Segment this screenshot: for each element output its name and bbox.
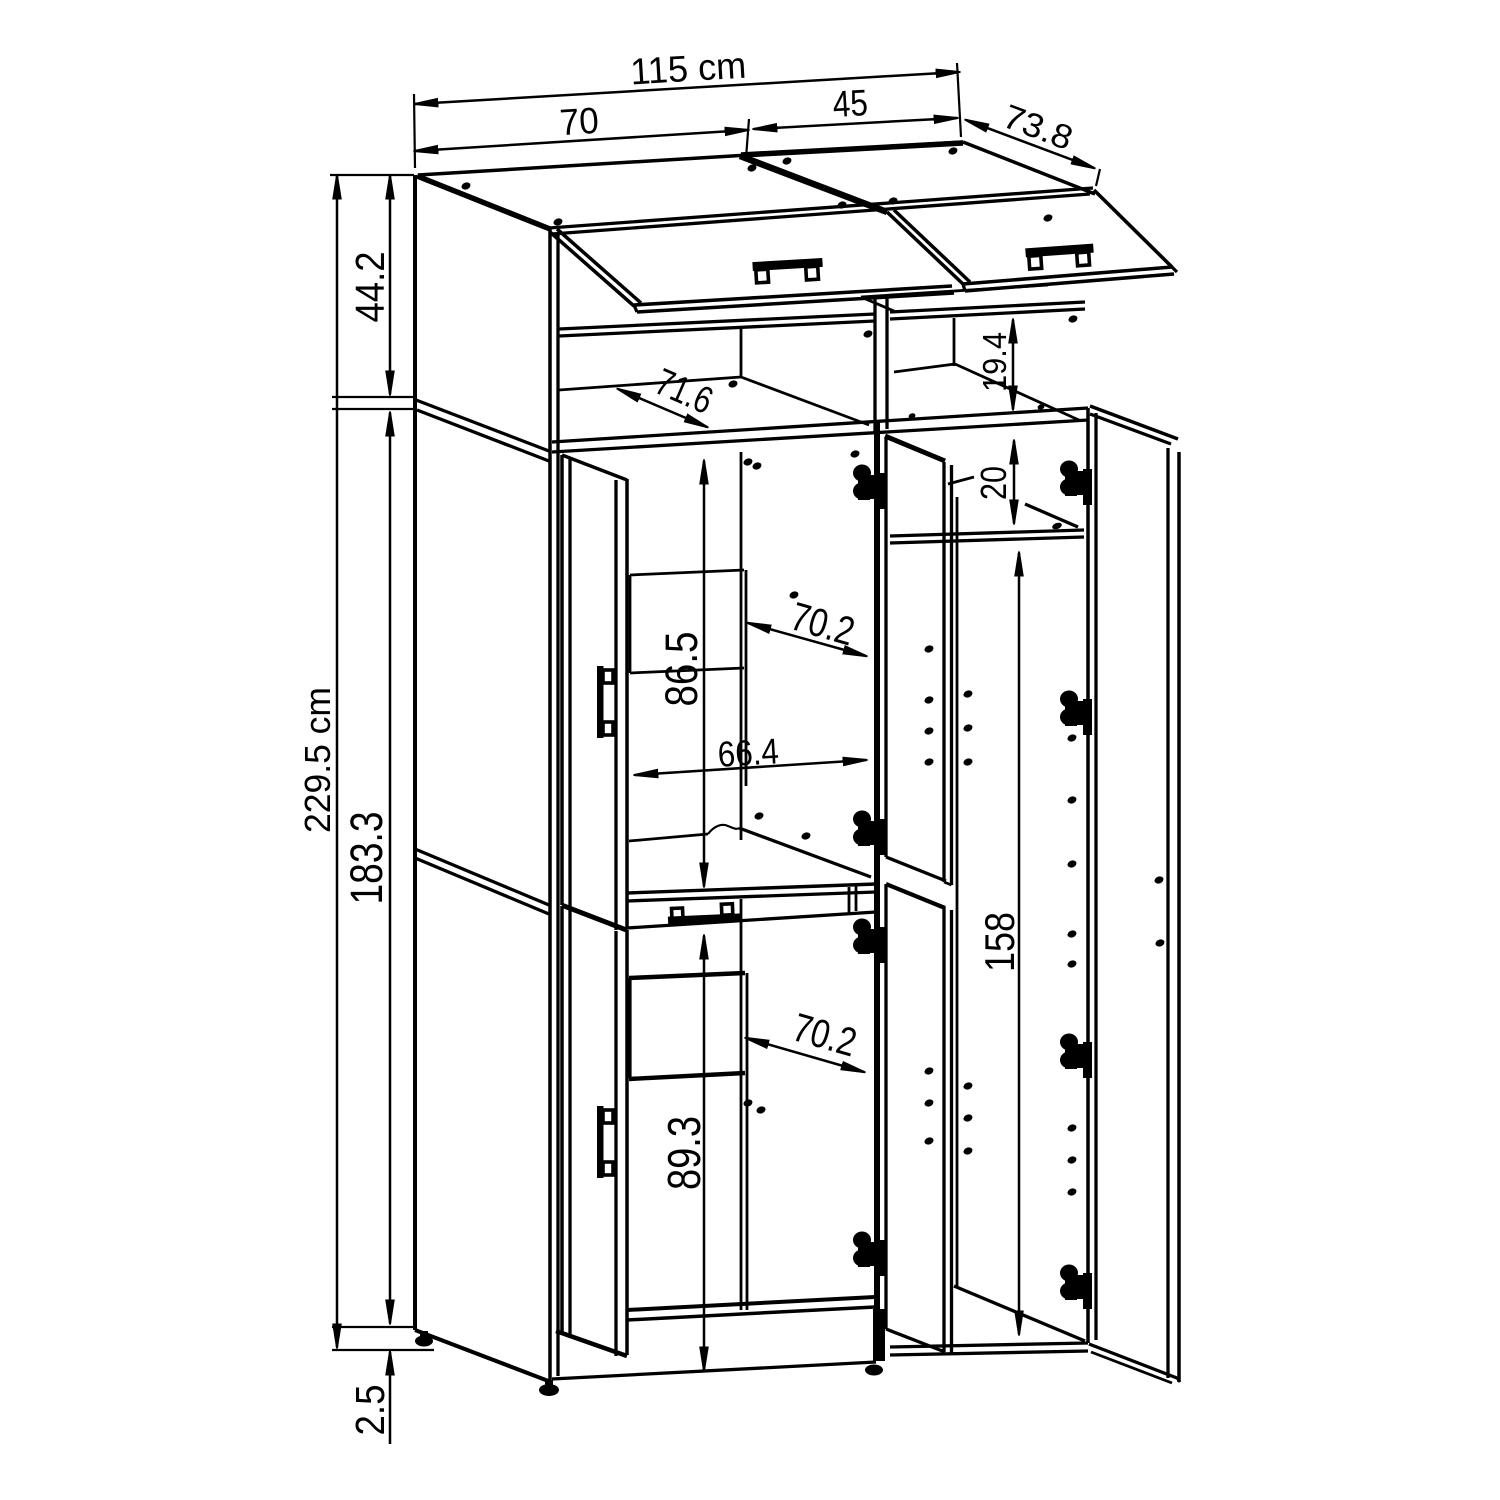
svg-text:66.4: 66.4 (717, 730, 780, 775)
svg-text:20: 20 (973, 466, 1014, 500)
svg-text:86.5: 86.5 (656, 632, 707, 707)
svg-text:70: 70 (558, 100, 599, 143)
svg-text:229.5 cm: 229.5 cm (297, 687, 338, 833)
svg-text:19.4: 19.4 (976, 332, 1013, 392)
svg-text:2.5: 2.5 (347, 1385, 393, 1436)
svg-text:45: 45 (832, 82, 869, 125)
svg-text:158: 158 (976, 912, 1023, 972)
svg-text:44.2: 44.2 (347, 252, 393, 323)
svg-text:183.3: 183.3 (341, 812, 392, 905)
svg-text:89.3: 89.3 (658, 1116, 710, 1190)
svg-text:115 cm: 115 cm (629, 45, 747, 93)
